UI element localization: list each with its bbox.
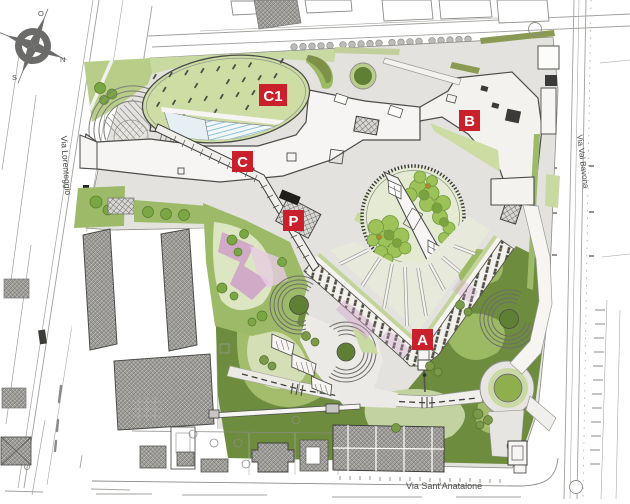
svg-text:C: C [237,154,248,171]
svg-text:B: B [464,113,475,130]
svg-text:S: S [12,73,17,82]
svg-text:C1: C1 [263,88,282,105]
svg-text:P: P [288,213,298,230]
svg-text:O: O [38,9,44,18]
svg-text:A: A [417,332,428,349]
svg-text:Via Sant'Anatalone: Via Sant'Anatalone [406,481,482,491]
svg-text:N: N [60,55,65,64]
